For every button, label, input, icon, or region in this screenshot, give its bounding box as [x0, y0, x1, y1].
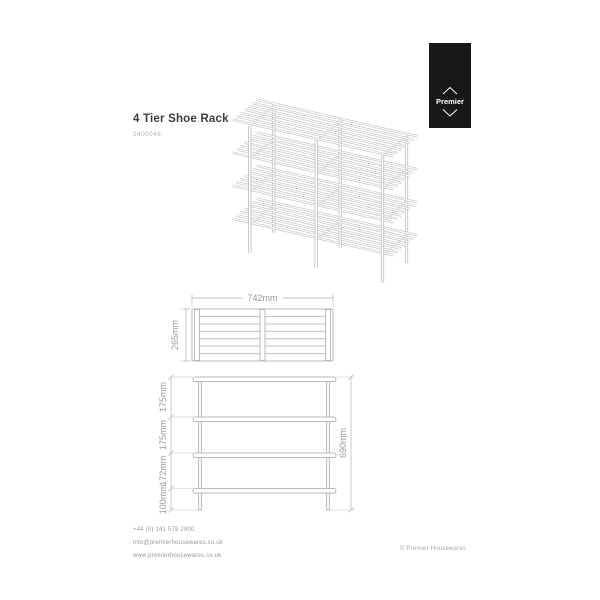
product-code: 2400046: [133, 131, 161, 138]
brand-name: Premier: [436, 97, 464, 106]
top-view-support-middle: [260, 310, 265, 361]
product-title: 4 Tier Shoe Rack: [133, 113, 229, 125]
top-view-support-right: [326, 310, 331, 361]
top-view-drawing: 742mm 265mm: [166, 288, 338, 366]
dim-label-segment-1: 175mm: [158, 382, 168, 412]
premier-logo: Premier: [429, 43, 471, 128]
spec-sheet-page: 4 Tier Shoe Rack 2400046 Premier: [0, 0, 600, 600]
footer-phone: +44 (0) 141 579 2000: [133, 527, 195, 533]
front-view-shelf-1: [193, 377, 336, 382]
dim-label-total-height: 690mm: [338, 428, 348, 458]
isometric-view-drawing: [226, 78, 426, 290]
dim-label-segment-2: 175mm: [158, 420, 168, 450]
footer-email[interactable]: info@premierhousewares.co.uk: [133, 540, 223, 546]
chevron-down-icon: [443, 110, 457, 117]
dim-label-segment-3: 172mm: [158, 456, 168, 486]
dim-label-segment-4: 100mm: [158, 484, 168, 514]
front-view-drawing: 175mm 175mm 172mm 100mm 690mm: [148, 370, 368, 546]
front-view-shelf-2: [193, 417, 336, 422]
dim-label-width: 742mm: [247, 293, 277, 303]
footer-website[interactable]: www.premierhousewares.co.uk: [133, 553, 221, 559]
footer-copyright: © Premier Housewares: [400, 546, 466, 552]
front-view-shelf-4: [193, 489, 336, 494]
front-view-shelf-3: [193, 453, 336, 458]
premier-badge: Premier: [429, 43, 471, 128]
chevron-up-icon: [443, 88, 457, 95]
top-view-support-left: [195, 310, 200, 361]
dim-label-depth: 265mm: [170, 320, 180, 350]
